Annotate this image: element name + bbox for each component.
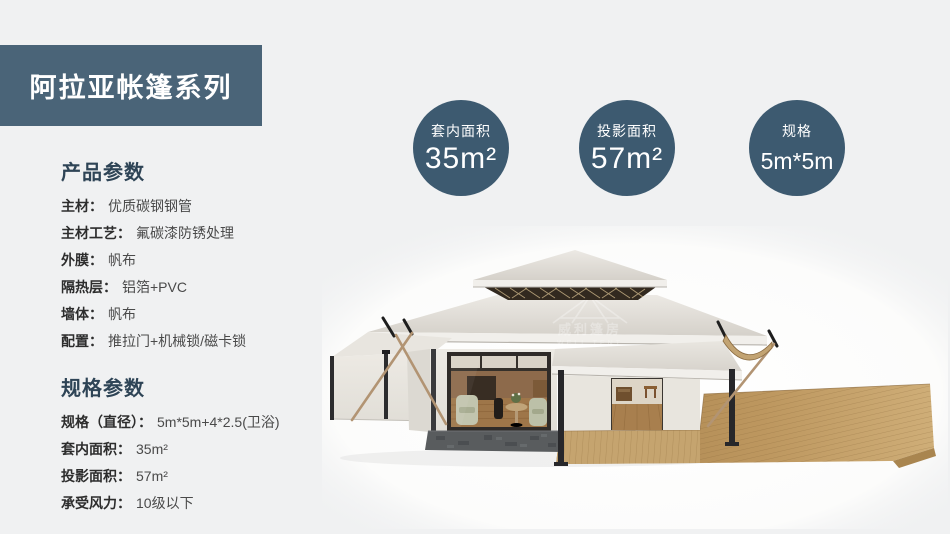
param-label: 外膜： — [61, 252, 103, 268]
doorway — [611, 378, 663, 430]
parameters-panel: 产品参数 主材：优质碳钢钢管 主材工艺：氟碳漆防锈处理 外膜：帆布 隔热层：铝箔… — [61, 156, 361, 517]
badge-label: 套内面积 — [413, 121, 509, 141]
param-row: 套内面积：35m² — [61, 436, 361, 463]
param-row: 投影面积：57m² — [61, 463, 361, 490]
param-value: 帆布 — [108, 306, 136, 322]
param-label: 主材工艺： — [61, 225, 131, 241]
interior-sideboard — [533, 380, 547, 397]
badge-label: 规格 — [749, 121, 845, 141]
param-label: 配置： — [61, 333, 103, 349]
param-value: 推拉门+机械锁/磁卡锁 — [108, 333, 246, 349]
param-value: 优质碳钢钢管 — [108, 198, 192, 214]
param-value: 5m*5m+4*2.5(卫浴) — [157, 414, 280, 430]
param-label: 隔热层： — [61, 279, 117, 295]
product-params-heading: 产品参数 — [61, 156, 361, 185]
param-label: 主材： — [61, 198, 103, 214]
param-row: 外膜：帆布 — [61, 247, 361, 274]
badge-value: 35m² — [413, 142, 509, 176]
watermark-en: WELL TENT — [557, 340, 623, 347]
param-row: 墙体：帆布 — [61, 301, 361, 328]
param-row: 规格（直径）：5m*5m+4*2.5(卫浴) — [61, 409, 361, 436]
param-label: 承受风力： — [61, 495, 131, 511]
badge-size: 规格 5m*5m — [749, 100, 845, 196]
interior-figure — [494, 398, 503, 419]
param-label: 投影面积： — [61, 468, 131, 484]
panel-post — [384, 354, 388, 419]
param-row: 配置：推拉门+机械锁/磁卡锁 — [61, 328, 361, 355]
param-value: 帆布 — [108, 252, 136, 268]
badge-projection-area: 投影面积 57m² — [579, 100, 675, 196]
param-label: 规格（直径）： — [61, 414, 152, 430]
badge-value: 57m² — [579, 142, 675, 176]
porch-post — [558, 370, 564, 463]
corner-post — [431, 349, 436, 432]
badge-inner-area: 套内面积 35m² — [413, 100, 509, 196]
interior-armchair — [529, 398, 547, 426]
param-label: 套内面积： — [61, 441, 131, 457]
series-title: 阿拉亚帐篷系列 — [30, 66, 233, 105]
param-value: 铝箔+PVC — [122, 279, 187, 295]
porch-post — [729, 369, 735, 443]
param-value: 10级以下 — [136, 495, 194, 511]
tent-product-image: 威利篷房 WELL TENT — [320, 225, 950, 530]
param-row: 主材：优质碳钢钢管 — [61, 193, 361, 220]
param-value: 35m² — [136, 441, 168, 457]
spec-params-heading: 规格参数 — [61, 372, 361, 401]
param-row: 隔热层：铝箔+PVC — [61, 274, 361, 301]
param-row: 主材工艺：氟碳漆防锈处理 — [61, 220, 361, 247]
stone-base — [425, 431, 562, 452]
badge-value: 5m*5m — [749, 148, 845, 175]
param-row: 承受风力：10级以下 — [61, 490, 361, 517]
param-value: 氟碳漆防锈处理 — [136, 225, 234, 241]
product-poster: 阿拉亚帐篷系列 产品参数 主材：优质碳钢钢管 主材工艺：氟碳漆防锈处理 外膜：帆… — [0, 0, 950, 534]
param-label: 墙体： — [61, 306, 103, 322]
param-value: 57m² — [136, 468, 168, 484]
badge-label: 投影面积 — [579, 121, 675, 141]
tent-body — [407, 349, 562, 452]
series-title-banner: 阿拉亚帐篷系列 — [0, 45, 262, 126]
panel-post — [330, 356, 334, 420]
panoramic-window — [447, 352, 551, 431]
watermark-cn: 威利篷房 — [558, 322, 622, 337]
